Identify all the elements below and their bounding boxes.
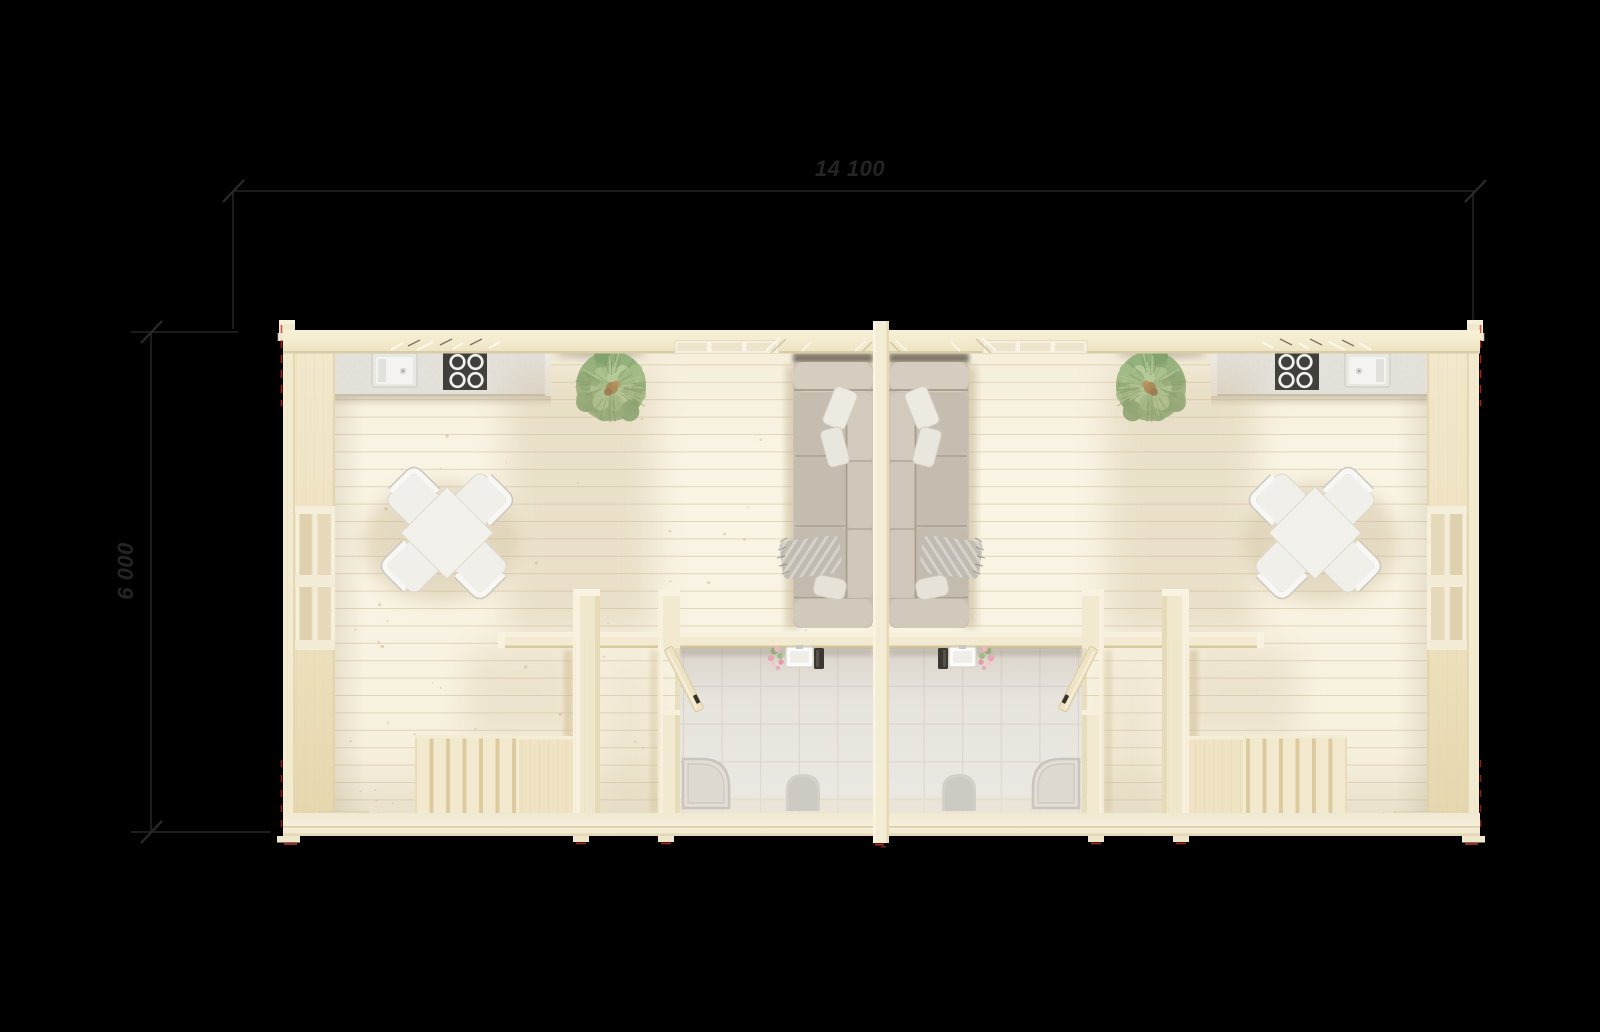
svg-text:14 100: 14 100: [815, 156, 886, 181]
svg-text:6 000: 6 000: [113, 542, 138, 600]
